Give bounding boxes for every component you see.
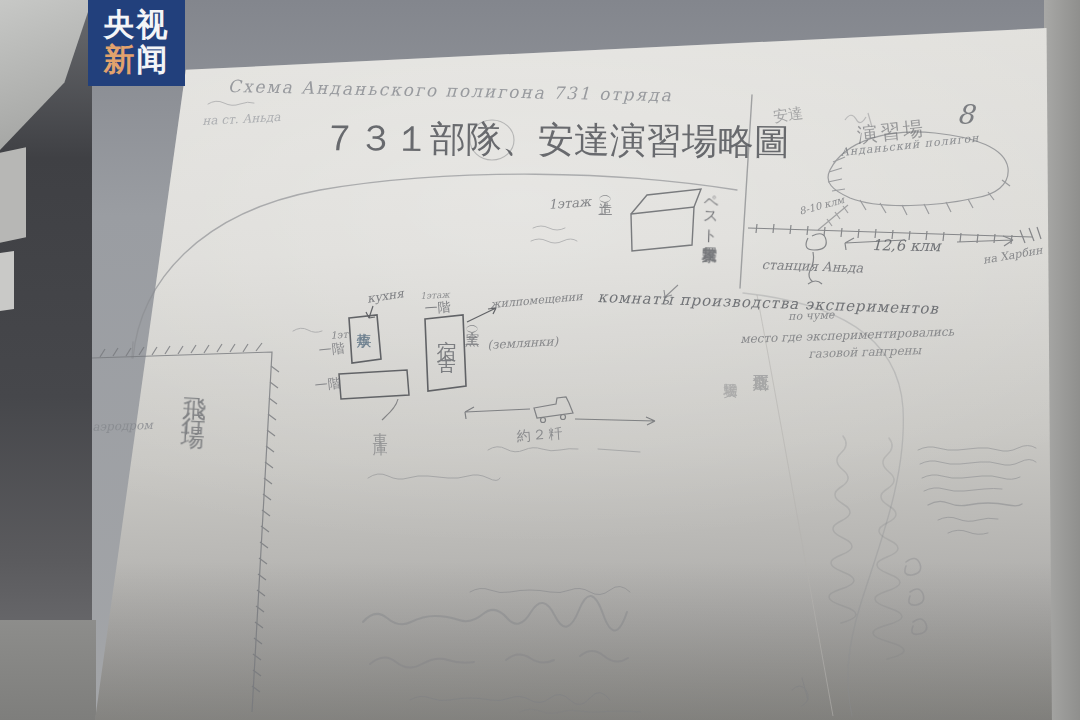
cctv-news-logo: 央视 新闻 <box>88 0 185 86</box>
garage-label-zh: 車庫 <box>370 420 389 468</box>
news-photo: Схема Анданьского полигона 731 отряда на… <box>0 0 1080 720</box>
document-shading <box>0 0 1080 720</box>
cctv-news-logo-line1: 央视 <box>104 8 170 43</box>
garage-floor-zh: 一階 <box>314 374 342 395</box>
route-distance-zh: 約２粁 <box>516 425 565 446</box>
airfield-label-zh: 飛行場 <box>173 378 212 509</box>
paper-stack-edge <box>0 147 26 243</box>
dormitory-floor-zh: 一階 <box>424 298 451 318</box>
railway-distance-label: 12,6 клм <box>872 236 941 255</box>
house-material-label: （土造） <box>597 190 615 270</box>
page-number: 8 <box>956 98 975 130</box>
dormitory-label-zh: 宿舍 <box>434 324 461 386</box>
kitchen-floor-zh: 一階 <box>318 339 346 360</box>
logo-char-wen: 闻 <box>137 42 170 77</box>
airfield-label-ru: аэродром <box>92 418 153 434</box>
map-title-chinese: ７３１部隊、安達演習場略圖 <box>322 114 790 167</box>
gangrene-label-zh-1: 瓦斯壞疽 <box>750 362 771 452</box>
paper-under-sheet <box>0 620 96 720</box>
kitchen-label-zh: 炊事 <box>354 321 373 361</box>
house-floor-label: 1этаж <box>548 194 591 212</box>
gangrene-label-zh-2: 實驗場 <box>722 372 740 442</box>
logo-char-xin: 新 <box>104 42 137 77</box>
paper-stack-edge <box>0 251 14 311</box>
plague-label: по чуме <box>788 308 835 323</box>
cctv-news-logo-line2: 新闻 <box>104 43 170 78</box>
dugout-label-zh: （土窯） <box>464 320 482 392</box>
